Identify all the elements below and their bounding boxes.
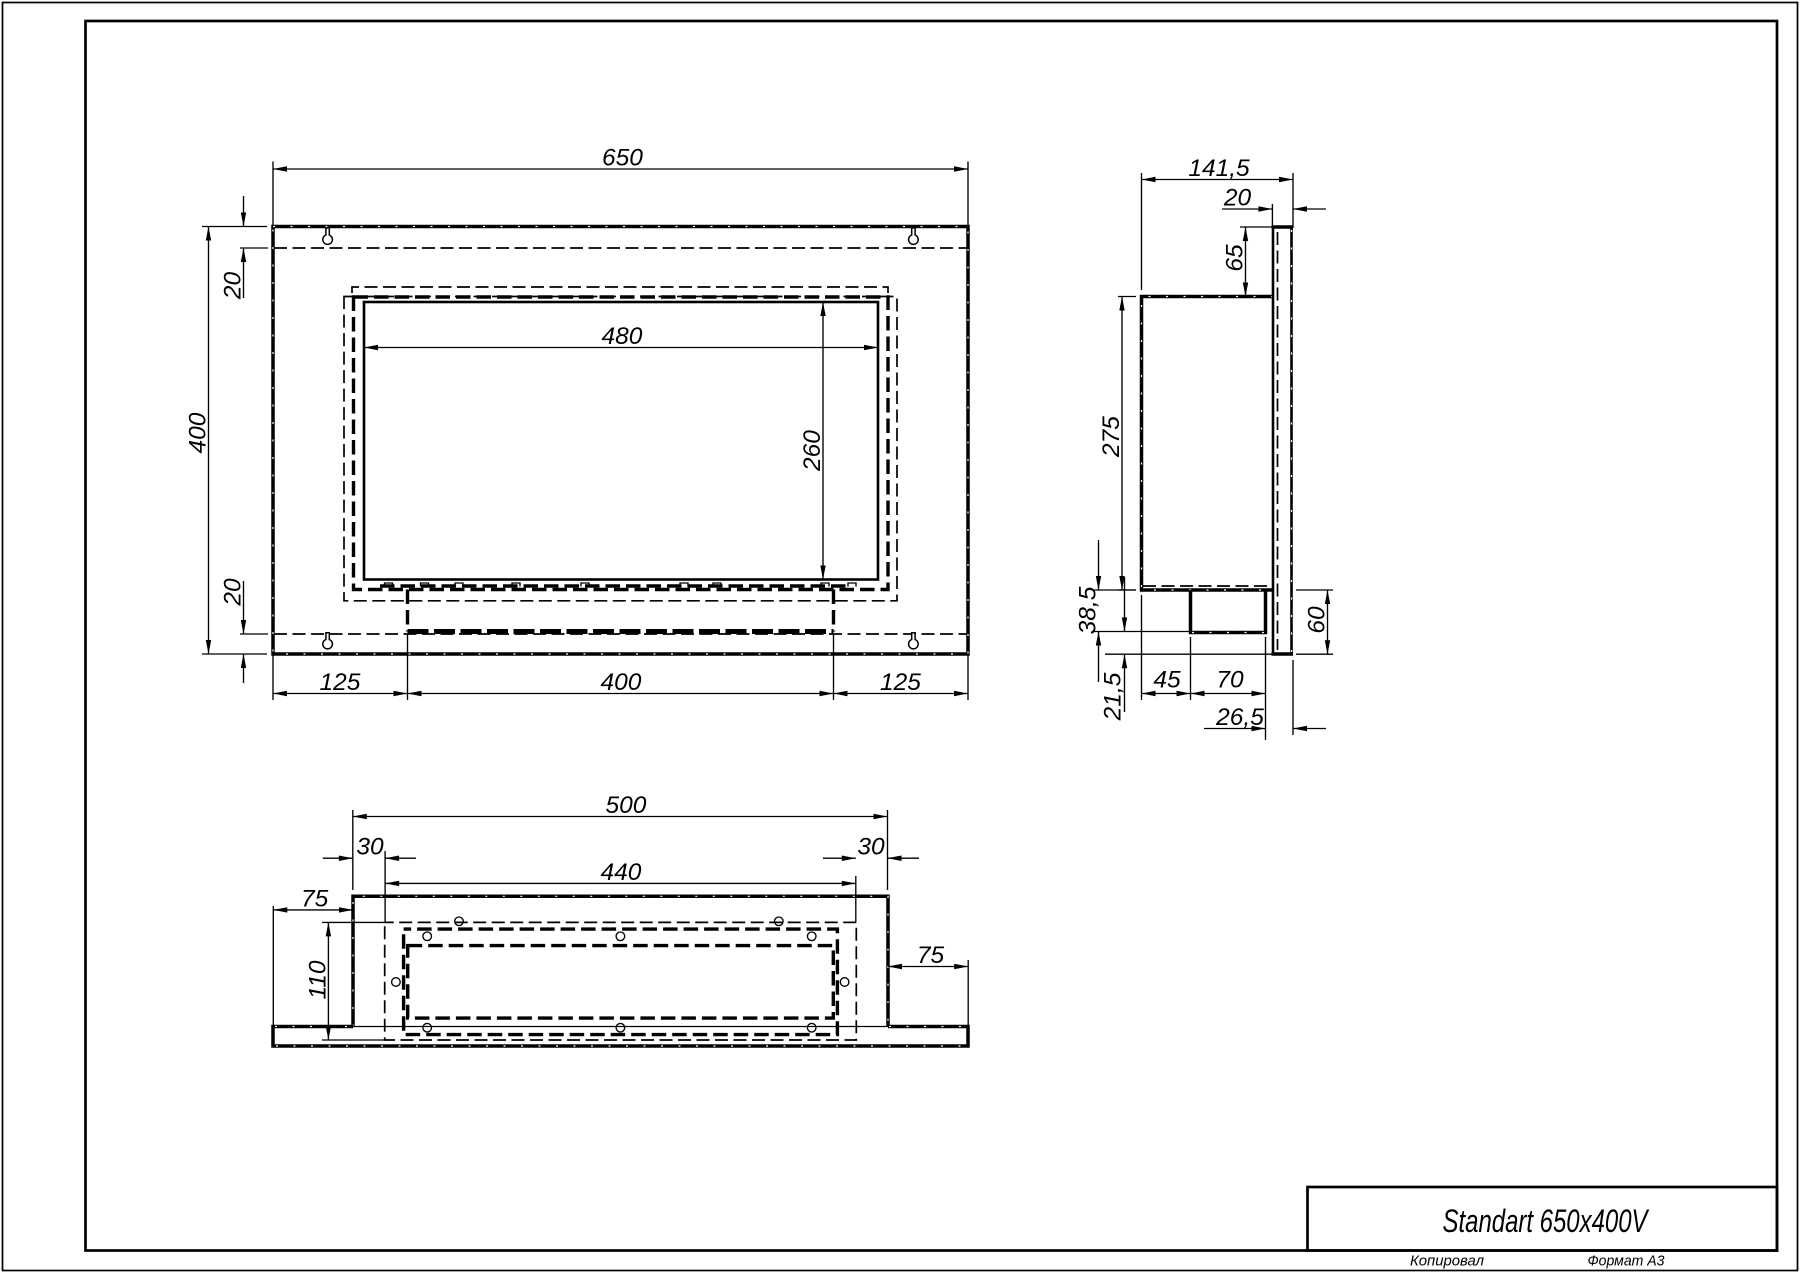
svg-text:260: 260 <box>799 430 826 472</box>
svg-text:70: 70 <box>1216 667 1244 694</box>
svg-text:650: 650 <box>602 145 643 172</box>
svg-text:500: 500 <box>606 792 647 819</box>
svg-text:21,5: 21,5 <box>1100 672 1127 721</box>
svg-text:75: 75 <box>917 942 945 969</box>
svg-text:45: 45 <box>1153 667 1181 694</box>
svg-text:Копировал: Копировал <box>1410 1254 1484 1270</box>
svg-text:125: 125 <box>320 669 361 696</box>
svg-text:65: 65 <box>1222 244 1249 272</box>
svg-text:30: 30 <box>356 834 384 861</box>
svg-text:275: 275 <box>1098 416 1125 458</box>
svg-text:20: 20 <box>220 578 247 607</box>
svg-text:125: 125 <box>880 669 921 696</box>
svg-text:440: 440 <box>601 859 642 886</box>
svg-text:38,5: 38,5 <box>1075 586 1102 634</box>
svg-text:30: 30 <box>857 834 885 861</box>
svg-text:20: 20 <box>1223 185 1252 212</box>
svg-text:Формат А3: Формат А3 <box>1588 1254 1665 1270</box>
svg-text:400: 400 <box>601 669 642 696</box>
svg-text:400: 400 <box>185 412 212 453</box>
svg-text:110: 110 <box>304 960 331 999</box>
svg-text:75: 75 <box>301 885 329 912</box>
svg-text:20: 20 <box>220 272 247 301</box>
svg-text:Standart 650x400V: Standart 650x400V <box>1443 1203 1650 1239</box>
svg-text:141,5: 141,5 <box>1188 155 1250 182</box>
svg-text:60: 60 <box>1304 606 1331 634</box>
svg-text:26,5: 26,5 <box>1215 704 1264 731</box>
svg-text:480: 480 <box>602 323 643 350</box>
